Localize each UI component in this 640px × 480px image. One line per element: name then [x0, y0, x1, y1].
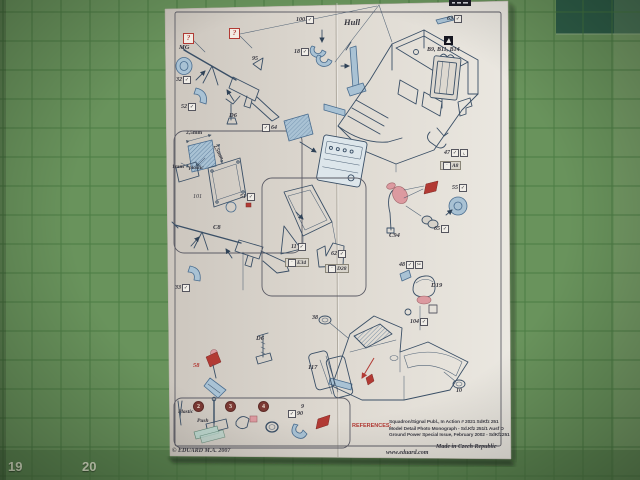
radio-box-part — [316, 135, 367, 188]
photo-of-instruction-sheet: ??MG32✓52✓95D6100✓18✓Hull63✓B9, B11, B14… — [0, 0, 640, 480]
stowage-box-part — [430, 53, 462, 100]
pink-square-part — [250, 416, 257, 422]
references-title: REFERENCES: — [352, 423, 391, 429]
mat-ruler-number: 19 — [8, 459, 22, 474]
sheet-code-badge — [449, 0, 471, 6]
references-block: REFERENCES: Squadron/Signal Publ., In Ac… — [350, 420, 502, 440]
reference-line: Squadron/Signal Publ., In Action # 2021 … — [389, 420, 502, 427]
made-in-text: Made in Czech Republic — [436, 444, 497, 450]
copyright-text: © EDUARD M.A. 2007 — [172, 448, 230, 454]
red-mini-square — [246, 203, 251, 207]
artwork — [0, 0, 640, 480]
reference-line: Ground Power Special Issue, February 200… — [389, 433, 502, 440]
website-text: www.eduard.com — [386, 450, 428, 456]
mat-ruler-number: 20 — [82, 459, 96, 474]
pe-symbol-blackbox — [444, 36, 453, 45]
ammo-drum-part — [176, 58, 192, 75]
mat-light-band — [614, 0, 640, 480]
